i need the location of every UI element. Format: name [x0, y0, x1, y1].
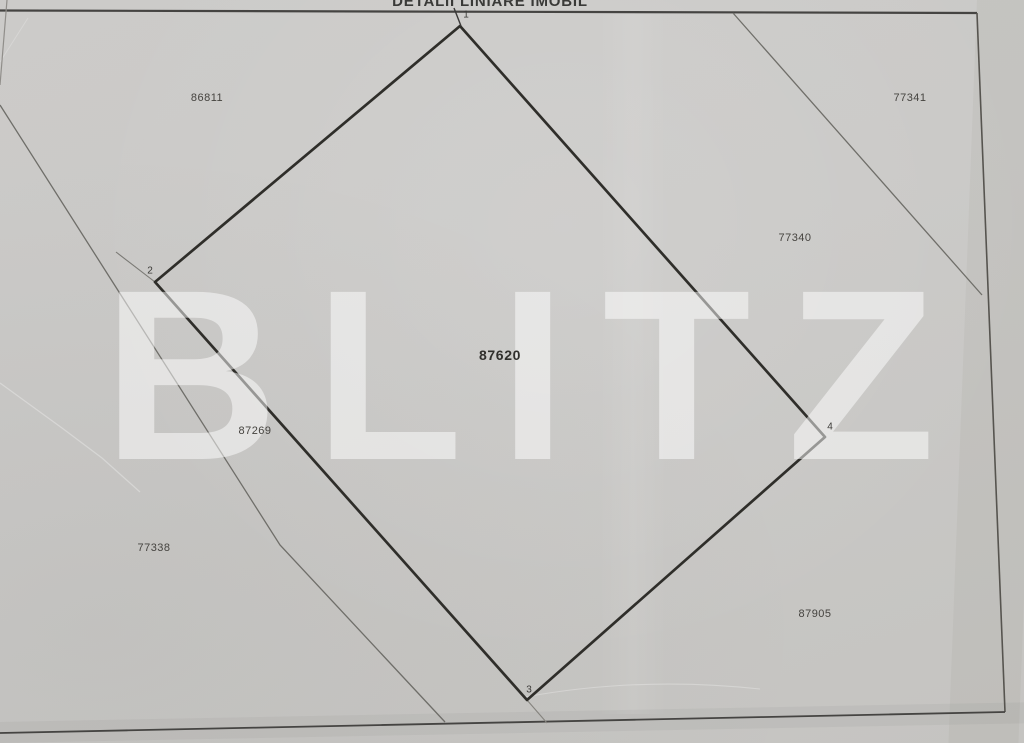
vertex-label-1: 1 [463, 10, 469, 21]
cadastral-plan-page: BLITZ DETALII LINIARE IMOBIL 87620 86811… [0, 0, 1024, 743]
page-left-edge-line [0, 0, 7, 85]
neighbor-parcel-left: 87269 [238, 425, 271, 437]
frame-right-line [977, 13, 1005, 712]
vertex-label-3: 3 [526, 685, 532, 696]
neighbor-parcel-top-right: 77341 [893, 92, 926, 104]
page-title: DETALII LINIARE IMOBIL [392, 0, 588, 10]
neighbor-parcel-bottom-left: 77338 [137, 542, 170, 554]
boundary-stub-vertex-3 [527, 700, 547, 723]
neighbor-parcel-bottom-right: 87905 [798, 608, 831, 620]
neighbor-parcel-right: 77340 [778, 232, 811, 244]
vertex-label-2: 2 [147, 266, 153, 277]
crease-line [525, 684, 760, 697]
frame-top-line [0, 11, 977, 14]
main-parcel-number: 87620 [479, 347, 521, 363]
vertex-label-4: 4 [827, 422, 833, 433]
frame-bottom-line [0, 712, 1005, 733]
neighbor-parcel-top-left: 86811 [191, 92, 223, 104]
blitz-watermark: BLITZ [103, 254, 971, 497]
